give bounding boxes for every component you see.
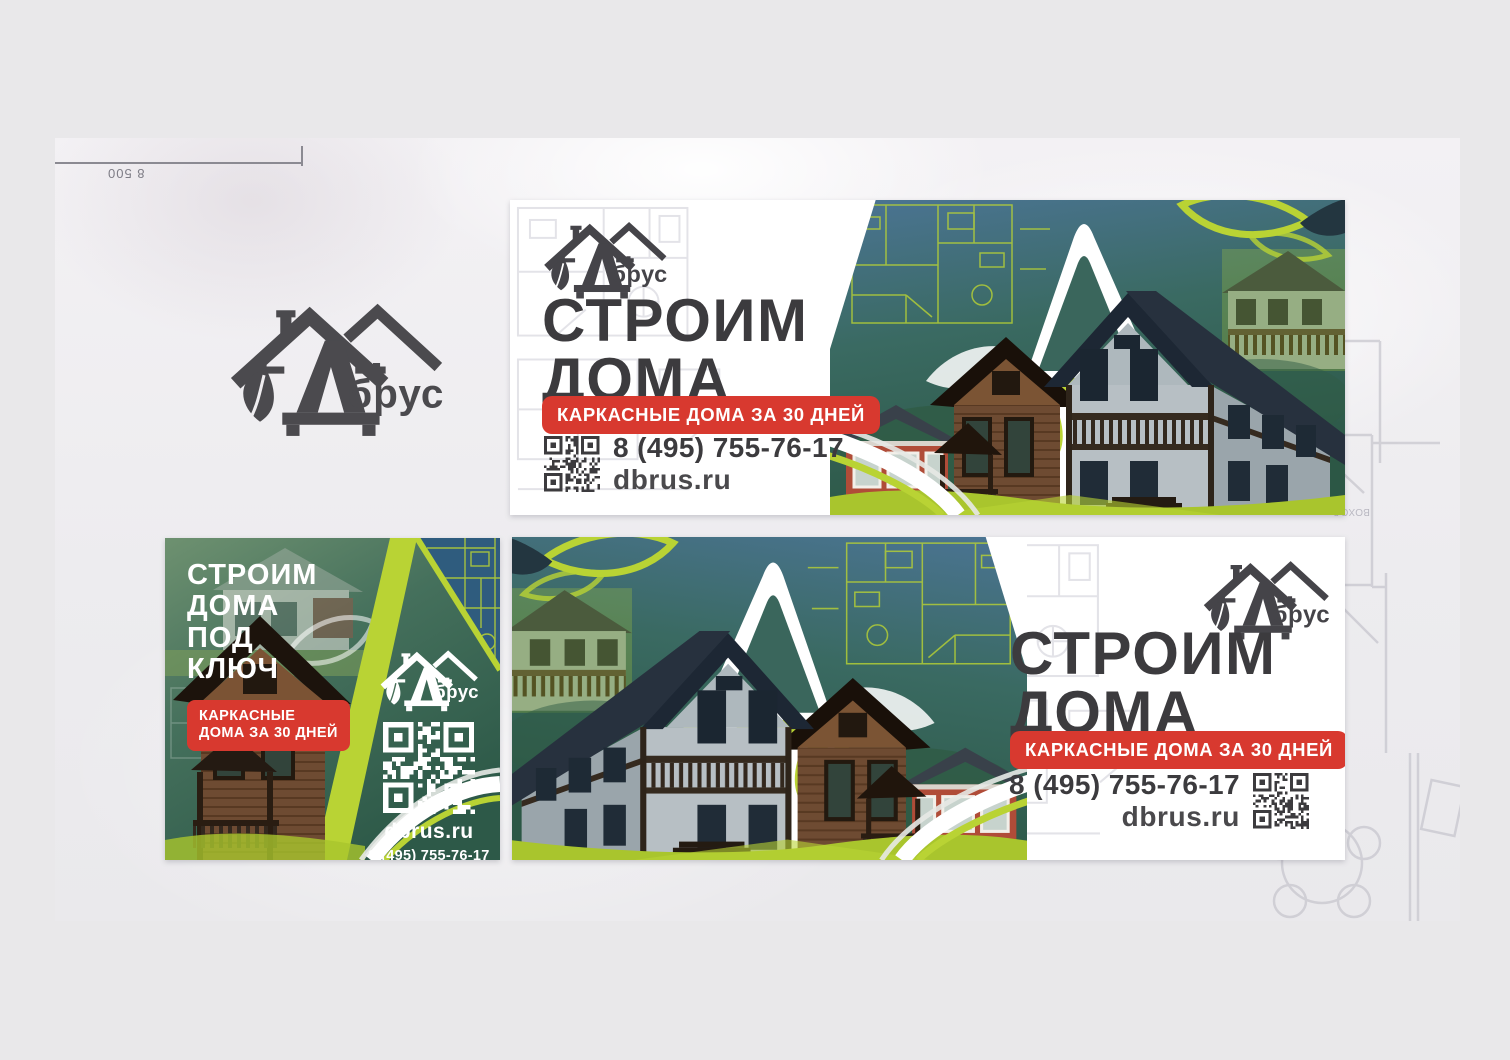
banner-wide-top: СТРОИМ ДОМА КАРКАСНЫЕ ДОМА ЗА 30 ДНЕЙ 8 … bbox=[510, 200, 1345, 515]
banner-wide-bottom: СТРОИМ ДОМА КАРКАСНЫЕ ДОМА ЗА 30 ДНЕЙ 8 … bbox=[512, 537, 1345, 860]
headline-line: СТРОИМ bbox=[542, 292, 809, 351]
website-url: dbrus.ru bbox=[613, 464, 844, 496]
phone-number: 8 (495) 755-76-17 bbox=[368, 848, 490, 860]
qr-code bbox=[1253, 773, 1309, 829]
offer-badge: КАРКАСНЫЕ ДОМА ЗА 30 ДНЕЙ bbox=[187, 700, 350, 751]
offer-badge: КАРКАСНЫЕ ДОМА ЗА 30 ДНЕЙ bbox=[542, 396, 880, 434]
phone-number: 8 (495) 755-76-17 bbox=[1009, 769, 1240, 801]
phone-number: 8 (495) 755-76-17 bbox=[613, 432, 844, 464]
website-url: dbrus.ru bbox=[368, 820, 490, 844]
banner-headline: СТРОИМ ДОМА bbox=[1010, 625, 1277, 743]
qr-code bbox=[383, 722, 475, 814]
badge-line: КАРКАСНЫЕ bbox=[199, 708, 338, 725]
headline-line: СТРОИМ bbox=[1010, 625, 1277, 684]
houses-illustration bbox=[512, 537, 1027, 860]
houses-illustration bbox=[830, 200, 1345, 515]
headline-line: СТРОИМ bbox=[187, 560, 317, 591]
dimension-rule bbox=[55, 162, 303, 164]
brand-logo bbox=[225, 290, 447, 442]
banner-headline: СТРОИМ ДОМА bbox=[542, 292, 809, 410]
contact-block: 8 (495) 755-76-17 dbrus.ru bbox=[1009, 769, 1309, 833]
mockup-background: 8 500 4,24 Тамб ВОХОД bbox=[55, 138, 1460, 921]
badge-line: ДОМА ЗА 30 ДНЕЙ bbox=[199, 725, 338, 742]
dimension-label: 8 500 bbox=[107, 166, 145, 181]
contact-block: 8 (495) 755-76-17 dbrus.ru bbox=[544, 432, 844, 496]
headline-line: КЛЮЧ bbox=[187, 654, 317, 685]
banner-square: СТРОИМ ДОМА ПОД КЛЮЧ КАРКАСНЫЕ ДОМА ЗА 3… bbox=[165, 538, 500, 860]
design-presentation-canvas: 8 500 4,24 Тамб ВОХОД bbox=[0, 0, 1510, 1060]
banner-headline: СТРОИМ ДОМА ПОД КЛЮЧ bbox=[187, 560, 317, 685]
website-url: dbrus.ru bbox=[1009, 801, 1240, 833]
headline-line: ПОД bbox=[187, 623, 317, 654]
contact-block: dbrus.ru 8 (495) 755-76-17 bbox=[368, 644, 490, 860]
dimension-tick bbox=[301, 146, 303, 166]
qr-code bbox=[544, 436, 600, 492]
offer-badge: КАРКАСНЫЕ ДОМА ЗА 30 ДНЕЙ bbox=[1010, 731, 1345, 769]
blueprint-dimension-line: 8 500 bbox=[55, 160, 303, 182]
brand-logo bbox=[379, 644, 479, 714]
headline-line: ДОМА bbox=[187, 591, 317, 622]
